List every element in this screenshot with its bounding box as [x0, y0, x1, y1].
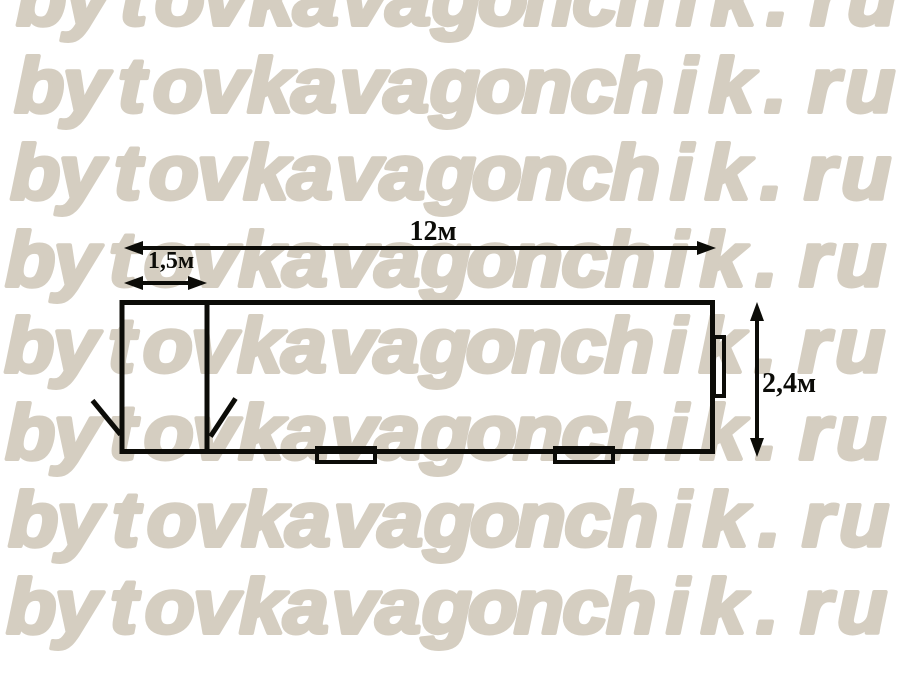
svg-text:1,5м: 1,5м: [148, 248, 194, 274]
svg-text:12м: 12м: [409, 216, 456, 247]
svg-text:2,4м: 2,4м: [762, 368, 816, 399]
